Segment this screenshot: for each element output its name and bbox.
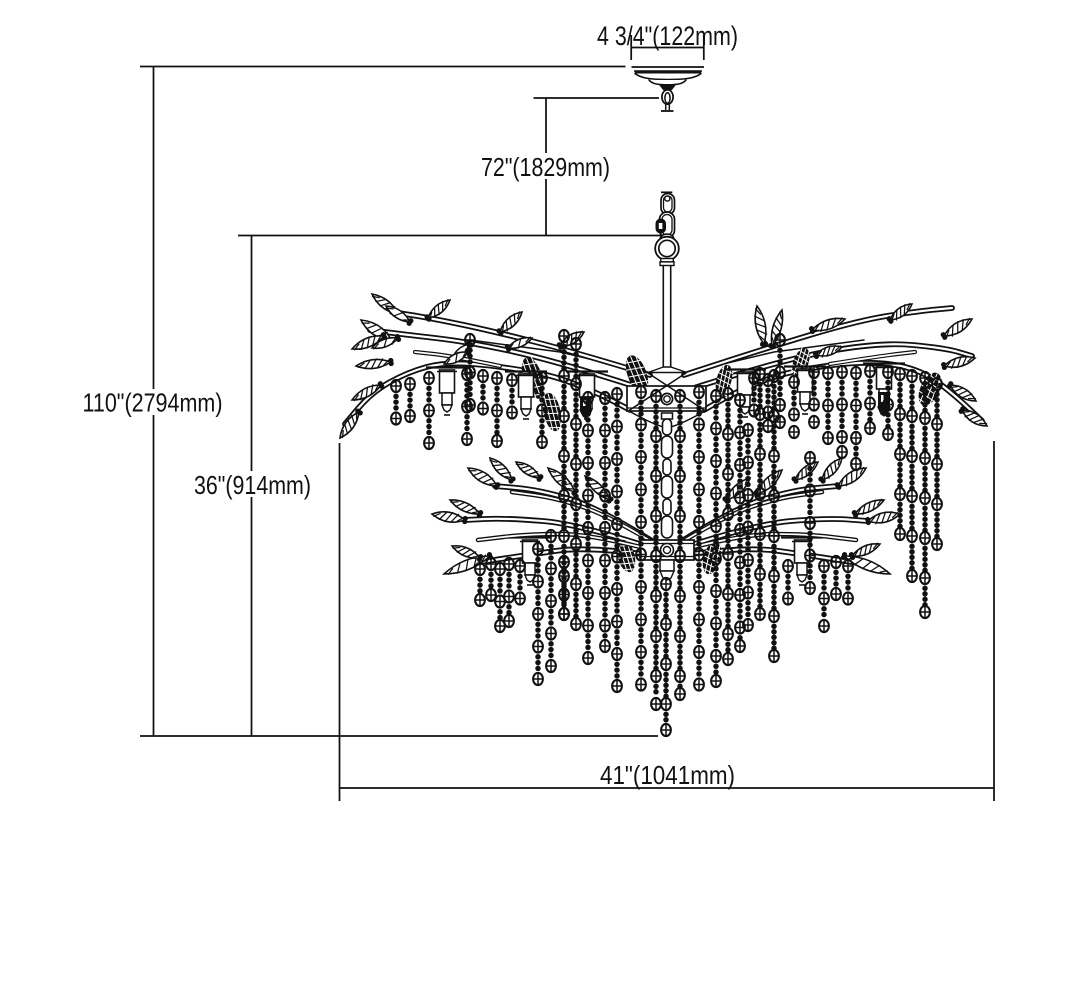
svg-text:4 3/4"(122mm): 4 3/4"(122mm) xyxy=(597,21,738,51)
svg-text:36"(914mm): 36"(914mm) xyxy=(194,470,311,500)
svg-text:41"(1041mm): 41"(1041mm) xyxy=(600,760,735,790)
svg-text:110"(2794mm): 110"(2794mm) xyxy=(83,388,223,418)
svg-text:72"(1829mm): 72"(1829mm) xyxy=(481,152,610,182)
